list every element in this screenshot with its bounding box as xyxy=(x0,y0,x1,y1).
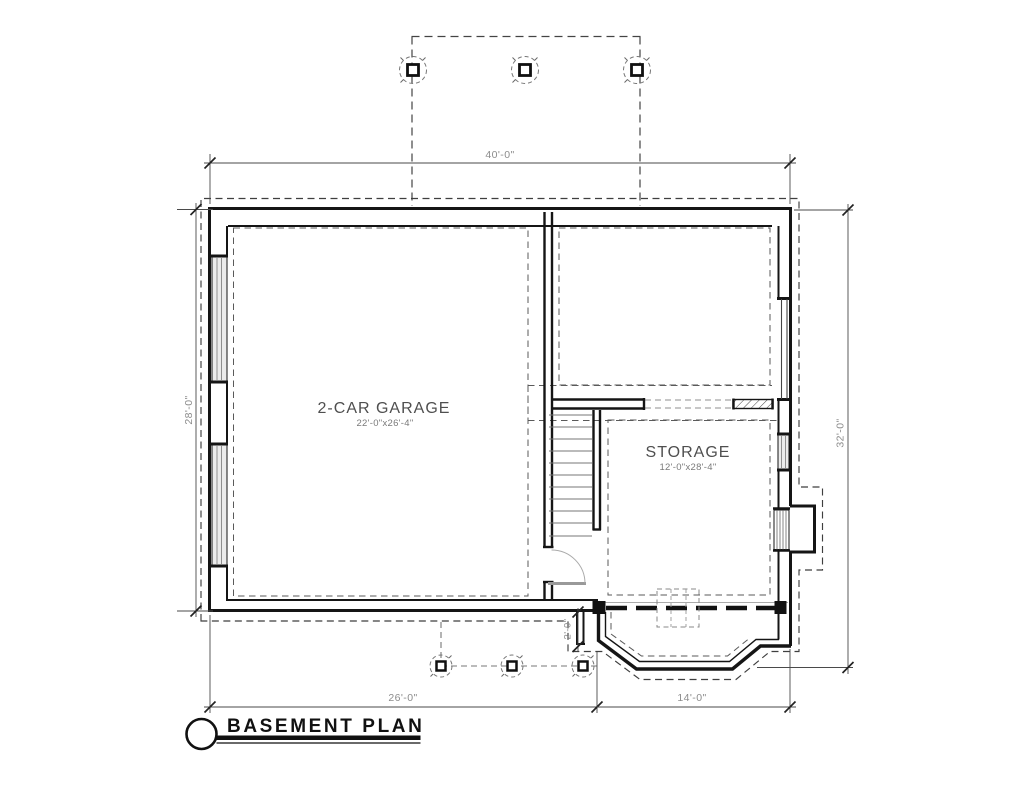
garage-label: 2-CAR GARAGE xyxy=(318,400,451,417)
basement-plan-drawing: 2-CAR GARAGE 22'-0"x26'-4" STORAGE 12'-0… xyxy=(0,0,1024,791)
dim-bottom-left-width: 26'-0" xyxy=(388,692,417,704)
interior-walls xyxy=(543,212,644,601)
interior-footing-dashes xyxy=(234,228,771,656)
dim-right-height: 32'-0" xyxy=(835,418,847,447)
title-block: BASEMENT PLAN xyxy=(187,716,425,749)
post-footing-icon xyxy=(624,57,651,84)
right-wall-windows xyxy=(777,299,791,471)
post-footing-icon xyxy=(400,57,427,84)
stairs xyxy=(549,415,592,536)
deck-post-footings-top xyxy=(400,57,651,84)
dimension-left-28: 28'-0" xyxy=(177,203,213,617)
room-labels: 2-CAR GARAGE 22'-0"x26'-4" STORAGE 12'-0… xyxy=(318,400,731,473)
beam-end-post xyxy=(775,601,787,614)
dimension-right-32: 32'-0" xyxy=(757,204,854,674)
left-wall-windows xyxy=(210,256,228,566)
dimension-top-40: 40'-0" xyxy=(204,149,796,204)
beam-line xyxy=(593,601,789,614)
deck-above-outline xyxy=(412,37,641,207)
door xyxy=(548,550,586,584)
exterior-walls xyxy=(208,207,792,646)
window-icon xyxy=(778,435,789,469)
post-footing-icon xyxy=(430,655,452,677)
window-icon xyxy=(212,257,227,381)
title-underline-thick xyxy=(217,736,421,741)
dimension-step-2: 2'-0" xyxy=(563,607,584,653)
sheet-title: BASEMENT PLAN xyxy=(227,716,424,737)
bay-window-walls xyxy=(599,612,792,669)
door-swing-arc xyxy=(552,550,586,584)
window-icon xyxy=(212,445,227,565)
dim-bay-offset: 2'-0" xyxy=(563,619,574,640)
dim-bottom-right-width: 14'-0" xyxy=(677,692,706,704)
title-bubble-icon xyxy=(187,719,217,749)
floor-plan-sheet: 2-CAR GARAGE 22'-0"x26'-4" STORAGE 12'-0… xyxy=(0,0,1024,791)
chimney-bump-out xyxy=(773,506,815,552)
post-footing-icon xyxy=(512,57,539,84)
dim-overall-width: 40'-0" xyxy=(485,149,514,161)
dimension-bottom-26: 26'-0" xyxy=(204,615,603,713)
dimension-bottom-14: 14'-0" xyxy=(597,649,796,713)
hatched-wall-segment xyxy=(733,399,773,410)
step-stub-wall xyxy=(576,612,585,644)
garage-size: 22'-0"x26'-4" xyxy=(356,418,413,429)
storage-label: STORAGE xyxy=(646,444,731,461)
storage-size: 12'-0"x28'-4" xyxy=(659,462,716,473)
dim-left-height: 28'-0" xyxy=(183,395,195,424)
beam-end-post xyxy=(593,601,606,614)
